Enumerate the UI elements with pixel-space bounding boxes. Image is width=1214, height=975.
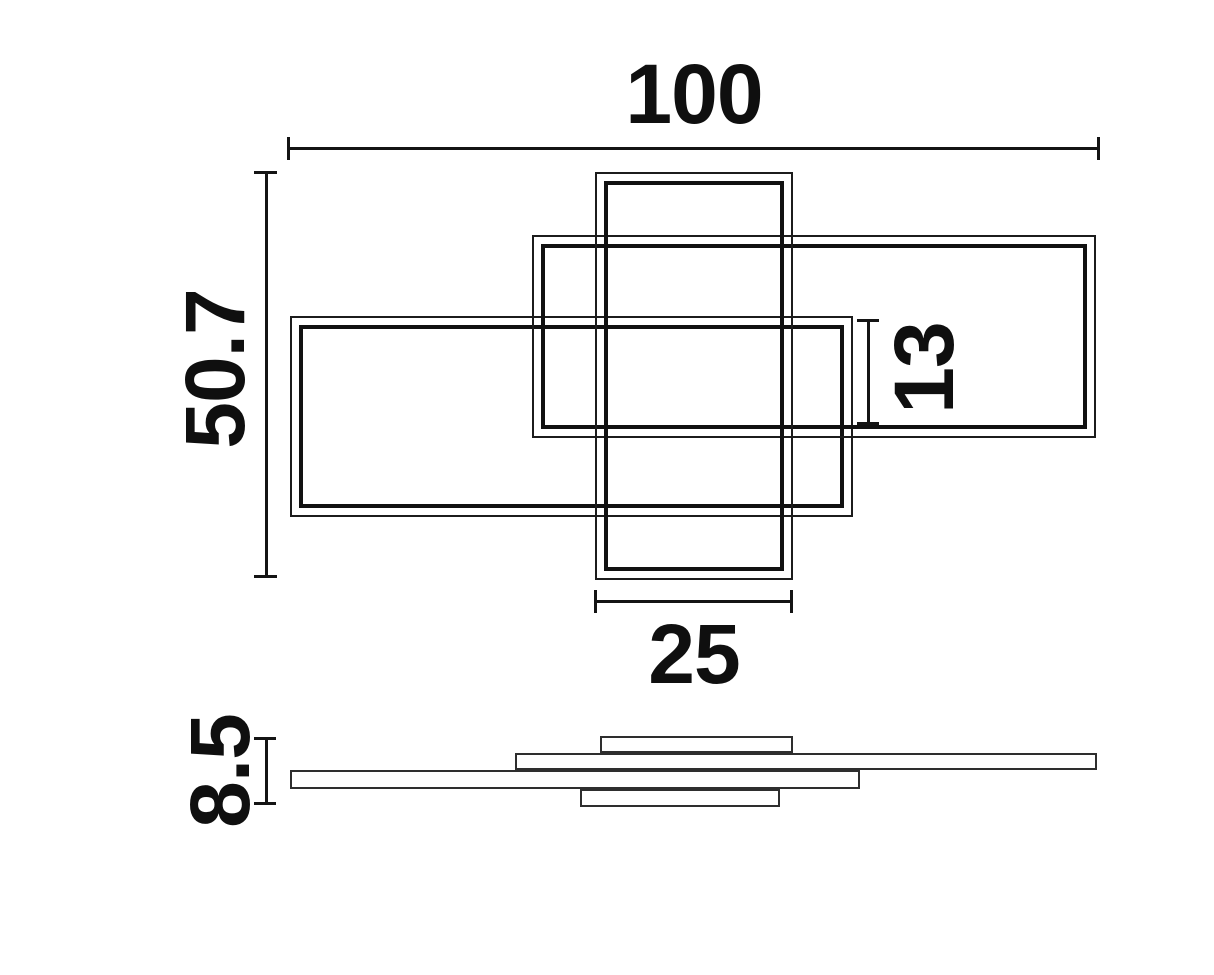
- dim-line: [867, 320, 870, 425]
- dimension-center-frame-width-label: 25: [594, 612, 794, 696]
- dimension-overall-depth-label: 50.7: [173, 239, 257, 499]
- dim-tick: [254, 575, 277, 578]
- dim-tick: [594, 590, 597, 613]
- dimension-frame-overlap-label: 13: [882, 288, 966, 448]
- dim-line: [288, 147, 1100, 150]
- dim-tick: [857, 319, 879, 322]
- dimension-overall-height-label: 8.5: [178, 671, 262, 871]
- dim-line: [595, 600, 793, 603]
- dim-line: [265, 172, 268, 578]
- dim-tick: [790, 590, 793, 613]
- dimension-drawing: 100 50.7 13 25 8.5: [0, 0, 1214, 975]
- dim-tick: [254, 171, 277, 174]
- side-slat-upper-long: [515, 753, 1097, 770]
- dim-tick: [1097, 137, 1100, 160]
- side-slat-top: [600, 736, 793, 753]
- dim-tick: [857, 422, 879, 425]
- frame-center-inner-outline: [604, 181, 784, 571]
- dimension-overall-width-label: 100: [544, 52, 844, 136]
- side-slat-bottom: [580, 789, 780, 807]
- side-slat-lower-long: [290, 770, 860, 789]
- dim-tick: [287, 137, 290, 160]
